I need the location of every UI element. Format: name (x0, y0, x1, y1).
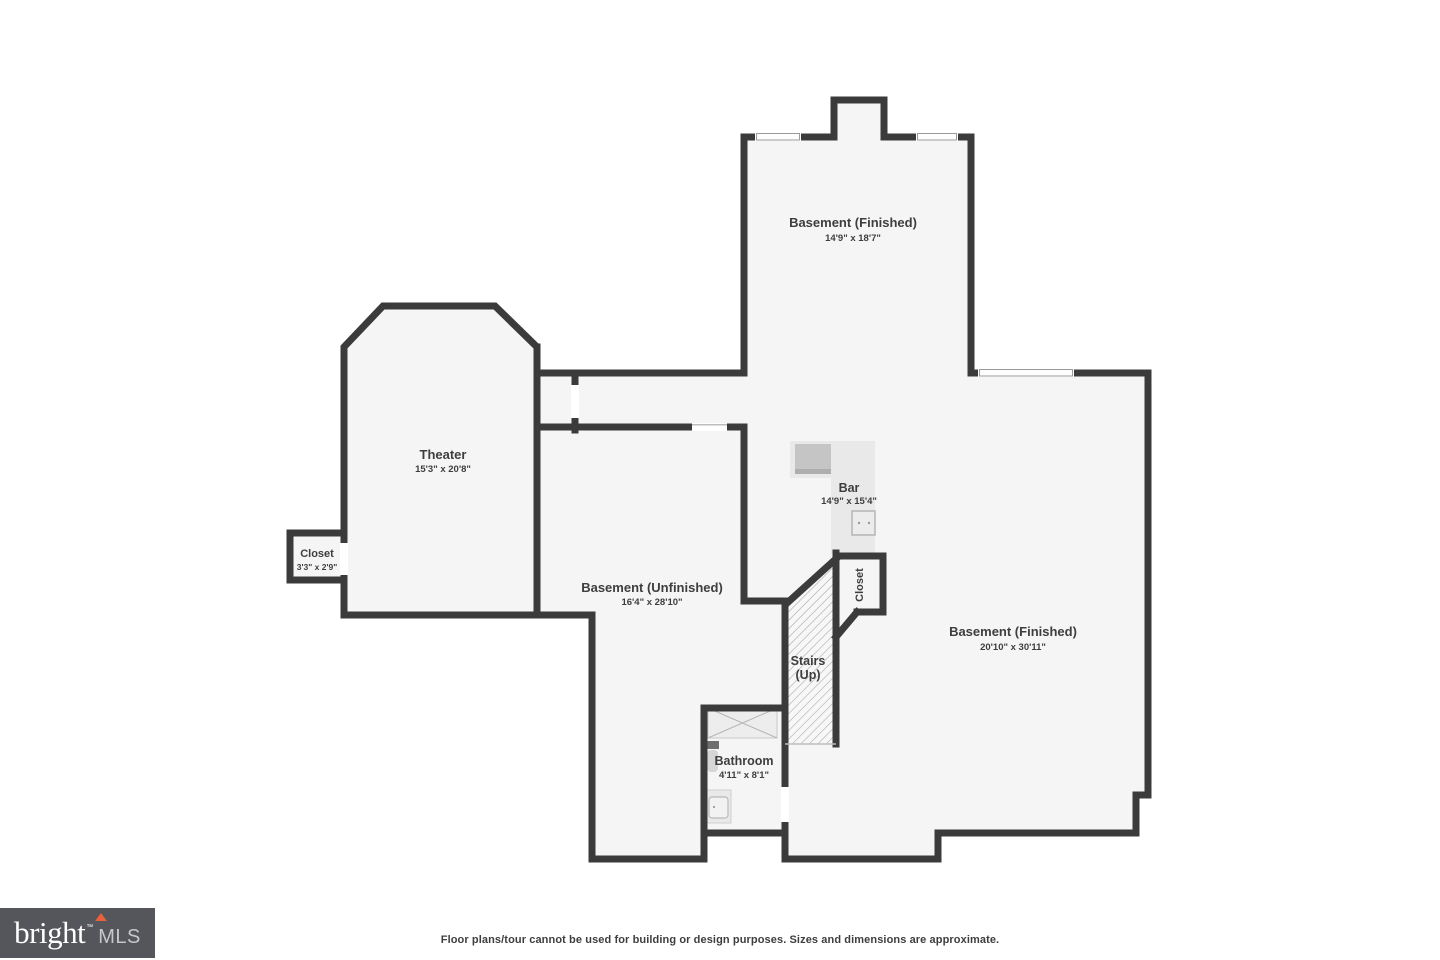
room-name: Closet (854, 568, 866, 602)
room-name: Theater (420, 447, 467, 462)
room-dims: 14'9" x 18'7" (825, 233, 881, 244)
door-gap-hall (571, 385, 579, 418)
window-top-left-icon (755, 132, 801, 141)
bar-sink-icon (852, 511, 875, 535)
room-dims: 4'11" x 8'1" (719, 770, 769, 781)
door-gap-closet-left (340, 543, 348, 575)
logo-trademark: ™ (86, 924, 93, 931)
bar-appliance-icon (795, 444, 831, 469)
room-dims: 15'3" x 20'8" (415, 464, 471, 475)
floorplan-svg: Basement (Finished) 14'9" x 18'7" Theate… (0, 0, 1440, 960)
room-name: Bar (839, 481, 860, 495)
room-name: Stairs (791, 654, 826, 668)
room-label-bathroom: Bathroom 4'11" x 8'1" (714, 754, 773, 781)
room-name: Basement (Finished) (789, 215, 917, 230)
window-top-right-icon (916, 132, 958, 141)
room-dims: 20'10" x 30'11" (980, 642, 1046, 653)
room-label-closet-stairs: Closet (854, 568, 866, 602)
disclaimer-text: Floor plans/tour cannot be used for buil… (0, 934, 1440, 946)
wall-opening (692, 423, 727, 431)
door-gap-bathroom (781, 787, 789, 822)
shower-icon (708, 708, 777, 738)
window-right-room-icon (978, 368, 1074, 377)
bathroom-sink-icon (705, 790, 731, 823)
room-label-theater: Theater 15'3" x 20'8" (415, 447, 471, 475)
room-name: Bathroom (714, 754, 773, 768)
floorplan-page: Basement (Finished) 14'9" x 18'7" Theate… (0, 0, 1440, 960)
room-name: Basement (Unfinished) (581, 580, 723, 595)
room-dims: 16'4" x 28'10" (621, 597, 682, 608)
room-dims: 14'9" x 15'4" (821, 496, 877, 507)
room-name: Basement (Finished) (949, 624, 1077, 639)
brightmls-logo: bright ™ MLS (0, 908, 155, 958)
room-name: Closet (300, 548, 334, 560)
logo-arrow-icon (95, 913, 107, 921)
room-dims: (Up) (796, 668, 821, 682)
room-label-stairs: Stairs (Up) (791, 654, 826, 682)
room-dims: 3'3" x 2'9" (297, 562, 337, 572)
